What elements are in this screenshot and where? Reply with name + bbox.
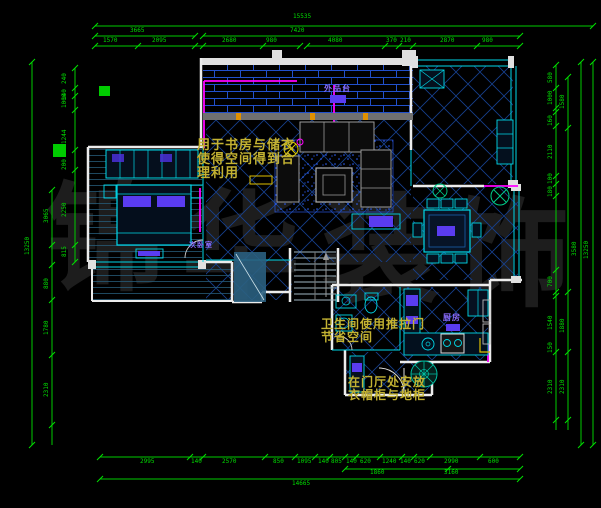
dim-label: 2250 xyxy=(62,203,68,217)
terrace-marker xyxy=(330,95,346,103)
dim-label: 2110 xyxy=(548,145,554,159)
dim-label: 370 xyxy=(386,38,397,44)
dim-label: 1000 xyxy=(62,94,68,108)
green-marker xyxy=(99,86,110,96)
floor-plan xyxy=(0,0,601,508)
dim-label: 13250 xyxy=(584,241,590,259)
dim-label: 1000 xyxy=(548,91,554,105)
annotation-line: 理利用 xyxy=(197,166,295,180)
dim-label: 140 xyxy=(318,459,329,465)
dim-label: 850 xyxy=(273,459,284,465)
dim-label: 2310 xyxy=(560,380,566,394)
dim-label: 1540 xyxy=(548,316,554,330)
dim-label: 140 xyxy=(191,459,202,465)
dim-label: 1860 xyxy=(370,470,384,476)
dim-label: 200 xyxy=(62,159,68,170)
dim-label: 1880 xyxy=(560,319,566,333)
dim-label: 2990 xyxy=(444,459,458,465)
dim-label: 150 xyxy=(548,342,554,353)
annotation-bathroom-door: 卫生间使用推拉门 节省空间 xyxy=(321,318,425,344)
dim-label: 1244 xyxy=(62,130,68,144)
dim-label: 980 xyxy=(482,38,493,44)
dim-label: 580 xyxy=(548,72,554,83)
dim-label: 880 xyxy=(44,278,50,289)
green-marker xyxy=(53,144,66,157)
cad-drawing-canvas[interactable]: 锦 华 装 饰 xyxy=(0,0,601,508)
dim-label: 240 xyxy=(62,73,68,84)
dim-label: 815 xyxy=(62,246,68,257)
dim-label: 2095 xyxy=(152,38,166,44)
dim-label: 980 xyxy=(266,38,277,44)
dim-label: 14665 xyxy=(292,481,310,487)
dim-label: 3580 xyxy=(572,242,578,256)
dim-label: 2870 xyxy=(440,38,454,44)
dim-label: 140 xyxy=(346,459,357,465)
dim-label: 3065 xyxy=(44,209,50,223)
dim-label: 100 xyxy=(548,173,554,184)
dim-label: 7420 xyxy=(290,28,304,34)
dim-label: 3665 xyxy=(130,28,144,34)
dim-label: 2680 xyxy=(222,38,236,44)
dim-label: 2310 xyxy=(44,383,50,397)
annotation-line: 节省空间 xyxy=(321,331,425,344)
dim-label: 3160 xyxy=(444,470,458,476)
dim-label: 15535 xyxy=(293,14,311,20)
dim-label: 180 xyxy=(548,186,554,197)
annotation-line: 用于书房与储衣 xyxy=(197,138,295,152)
dim-label: 1240 xyxy=(382,459,396,465)
dim-label: 1570 xyxy=(103,38,117,44)
dim-label: 2995 xyxy=(140,459,154,465)
dim-label: 13250 xyxy=(25,237,31,255)
dim-label: 160 xyxy=(548,115,554,126)
dim-label: 4080 xyxy=(328,38,342,44)
annotation-study-closet: 用于书房与储衣 使得空间得到合 理利用 xyxy=(197,138,295,180)
dim-label: 2570 xyxy=(222,459,236,465)
dim-label: 620 xyxy=(360,459,371,465)
dim-label: 620 xyxy=(414,459,425,465)
annotation-entry-cabinet: 在门厅处安放 衣帽柜与地柜 xyxy=(348,376,426,402)
dim-label: 600 xyxy=(488,459,499,465)
room-label-terrace: 外品台 xyxy=(324,83,351,94)
dim-label: 210 xyxy=(400,38,411,44)
dim-label: 700 xyxy=(548,276,554,287)
dim-label: 140 xyxy=(400,459,411,465)
dim-label: 805 xyxy=(331,459,342,465)
dim-label: 2310 xyxy=(548,380,554,394)
annotation-line: 使得空间得到合 xyxy=(197,152,295,166)
room-label-kitchen: 厨房 xyxy=(443,312,461,323)
dim-label: 1095 xyxy=(297,459,311,465)
room-label-bedroom: 次卧室 xyxy=(189,240,213,250)
sill-band xyxy=(203,113,413,120)
dim-label: 1780 xyxy=(44,321,50,335)
annotation-line: 衣帽柜与地柜 xyxy=(348,389,426,402)
dim-label: 1580 xyxy=(560,95,566,109)
